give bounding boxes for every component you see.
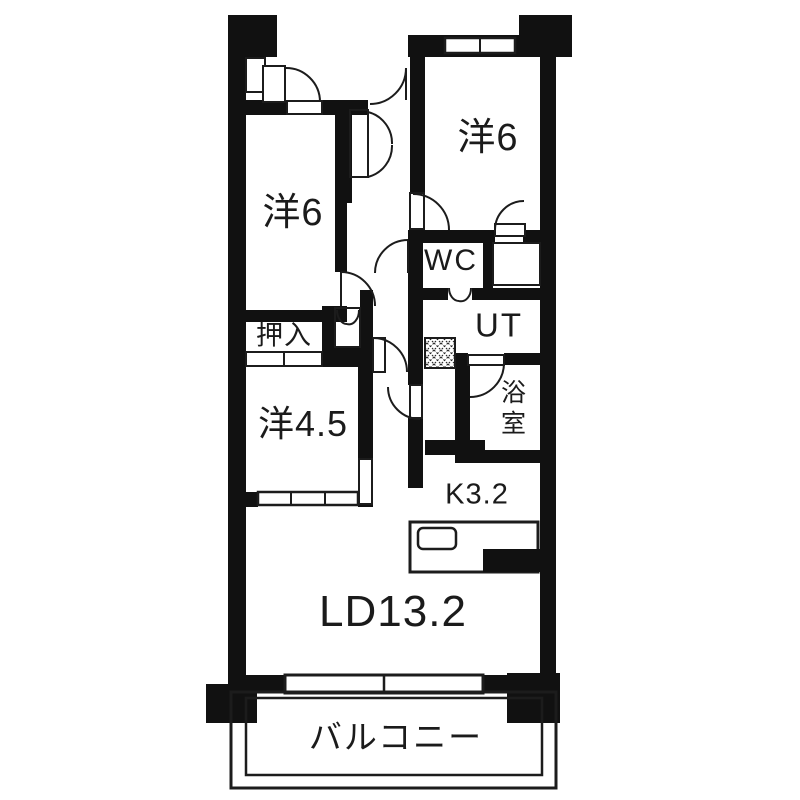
entry-storage-body [350, 110, 368, 177]
sliding-door-bedroom45-bottom [258, 492, 358, 505]
room-label-wc: WC [424, 246, 478, 276]
pillar-top-left [228, 15, 277, 57]
entry-storage-door-upper [368, 112, 392, 144]
bedroom-right-door-leaf [410, 193, 424, 229]
kitchen-wall-stub [483, 549, 540, 572]
entrance-door-leaf [263, 66, 285, 102]
hall-door-arc [370, 68, 406, 104]
room-label-closet: 押入 [256, 323, 312, 350]
room-label-bedroom-small: 洋4.5 [258, 406, 348, 442]
bath-door-leaf [468, 355, 504, 365]
entrance-door-arc [285, 68, 320, 102]
wc-door-arc [375, 240, 408, 273]
room-label-bedroom-left: 洋6 [262, 194, 323, 232]
room-label-balcony: バルコニー [309, 721, 483, 754]
room-label-kitchen: K3.2 [445, 481, 509, 510]
utility-bifold-door [449, 288, 471, 301]
room-label-utility: UT [475, 309, 523, 342]
kitchen-sink [418, 528, 456, 549]
entry-door-sill [287, 101, 322, 114]
hallway-door-leaf-upper [373, 338, 385, 372]
room-label-bath: 浴室 [499, 379, 524, 441]
bedroom-right-closet [493, 243, 540, 285]
room-label-bedroom-right: 洋6 [457, 119, 518, 157]
entry-storage-door-lower [368, 145, 392, 177]
sliding-door-bedroom45-side [359, 459, 372, 504]
closet-right-door-leaf [495, 224, 525, 236]
washing-machine-pan [425, 338, 455, 368]
pillar-top-right [519, 15, 572, 57]
hallway-door-leaf-lower [410, 385, 422, 418]
room-label-living-dining: LD13.2 [319, 590, 467, 634]
floor-plan-canvas: 洋6 洋6 WC UT 浴室 押入 洋4.5 K3.2 LD13.2 バルコニー [0, 0, 800, 800]
floor-plan-drawing [0, 0, 800, 800]
